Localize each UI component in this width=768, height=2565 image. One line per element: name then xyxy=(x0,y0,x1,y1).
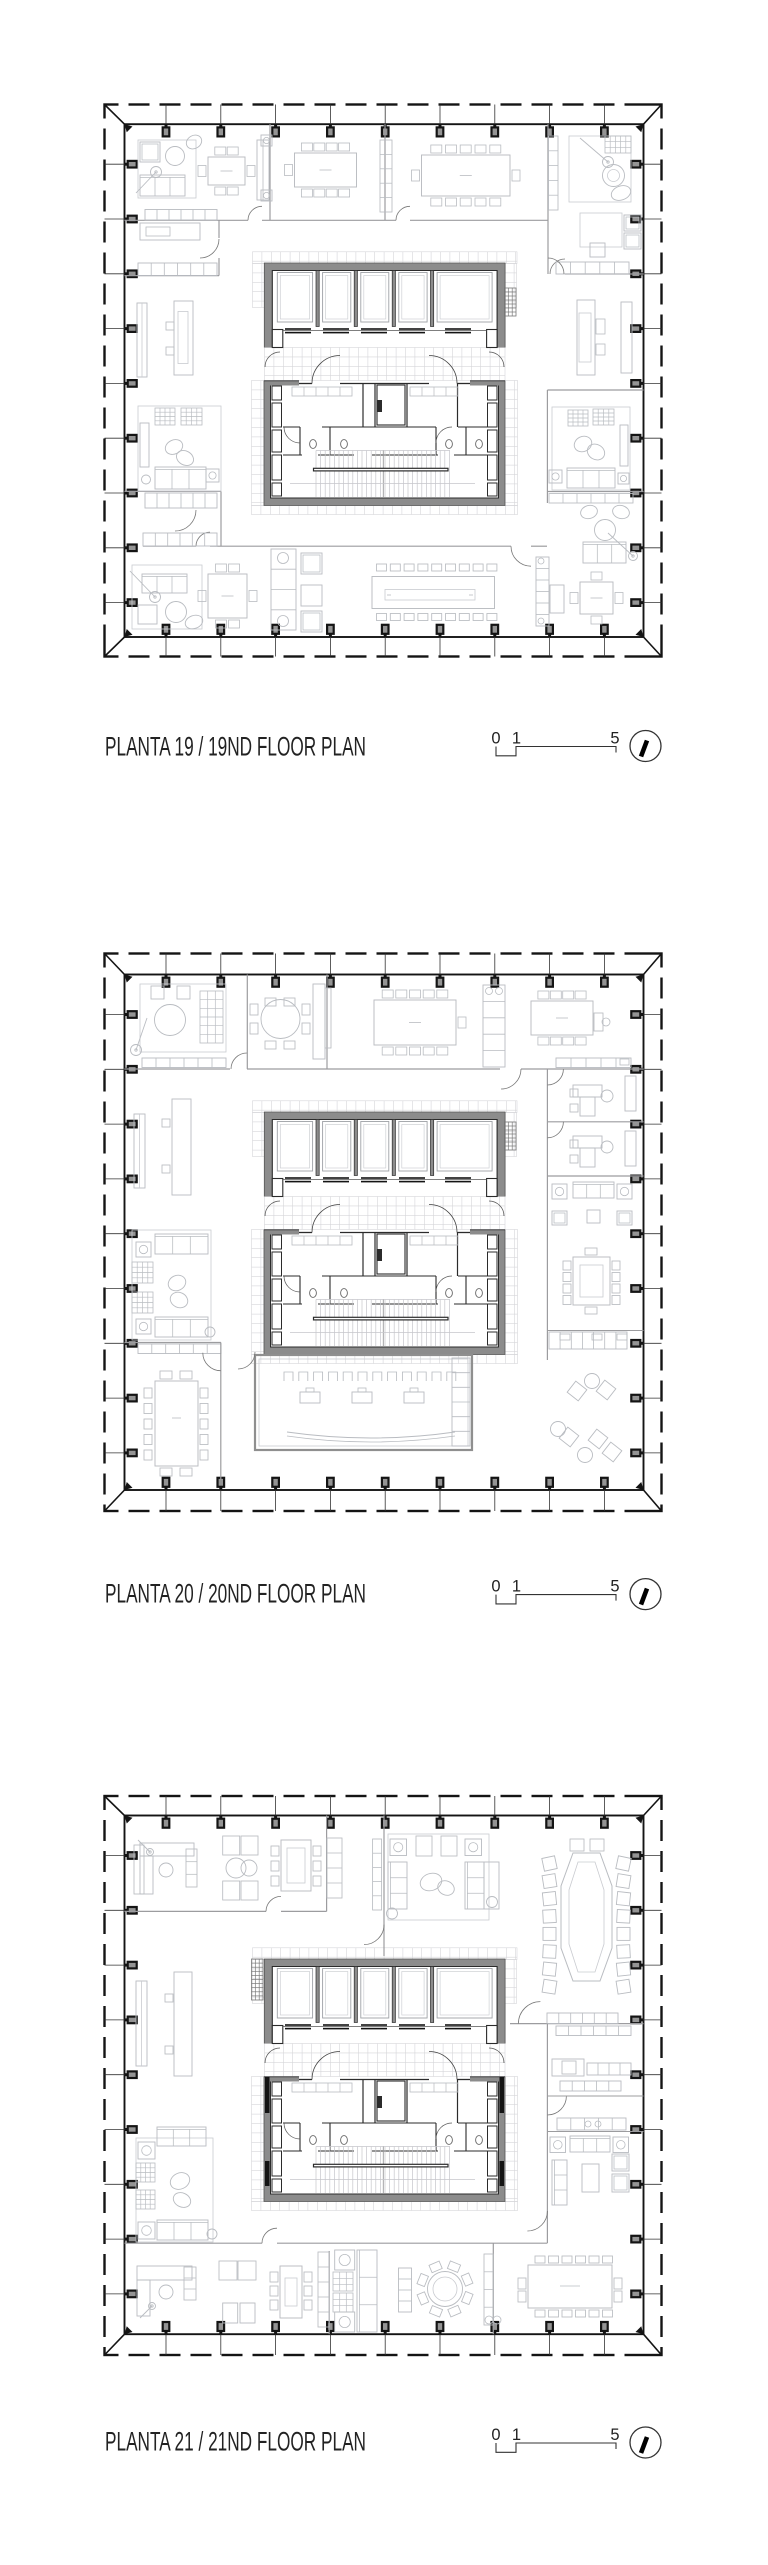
svg-text:5: 5 xyxy=(610,2426,619,2444)
svg-text:PLANTA 20 / 20ND FLOOR PLAN: PLANTA 20 / 20ND FLOOR PLAN xyxy=(105,1578,366,1608)
svg-text:5: 5 xyxy=(610,729,619,747)
svg-text:1: 1 xyxy=(512,1577,521,1595)
svg-text:0: 0 xyxy=(491,2426,500,2444)
svg-text:PLANTA 21 / 21ND FLOOR PLAN: PLANTA 21 / 21ND FLOOR PLAN xyxy=(105,2427,366,2457)
svg-text:5: 5 xyxy=(610,1577,619,1595)
svg-text:1: 1 xyxy=(512,729,521,747)
svg-text:PLANTA 19 / 19ND FLOOR PLAN: PLANTA 19 / 19ND FLOOR PLAN xyxy=(105,732,366,762)
svg-text:1: 1 xyxy=(512,2426,521,2444)
svg-text:0: 0 xyxy=(491,1577,500,1595)
svg-text:0: 0 xyxy=(491,729,500,747)
